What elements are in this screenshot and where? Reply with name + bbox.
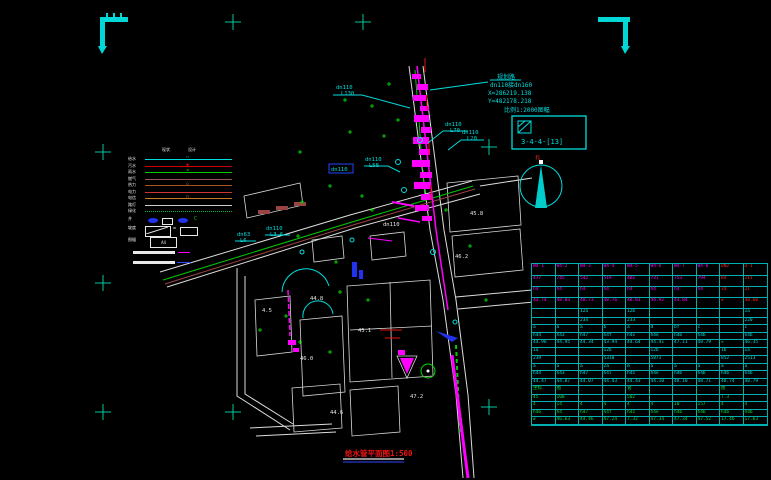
table-cell: a <box>673 363 697 371</box>
table-row: 41444441015744 <box>532 401 767 409</box>
table-row: aaa2amaaaaa <box>532 363 767 371</box>
table-cell: h4b <box>697 409 721 417</box>
table-cell: 4 <box>532 401 556 409</box>
legend-row-label: 雨水 <box>128 169 136 175</box>
table-cell: h4 <box>532 286 556 297</box>
pipe-hatch-block <box>417 84 428 90</box>
table-cell: h4b <box>720 370 744 378</box>
table-cell: c <box>697 324 721 332</box>
legend-header-existing: 现状 <box>162 147 170 153</box>
pipe-hatch-block <box>421 127 431 133</box>
maroon-hatch-block <box>294 202 306 206</box>
table-cell: bf <box>673 324 697 332</box>
table-cell: 44.41 <box>650 339 674 347</box>
table-cell: h4x <box>626 332 650 340</box>
table-cell: h4e <box>650 370 674 378</box>
table-cell: 519 <box>603 275 627 286</box>
table-cell: a <box>556 324 580 332</box>
table-cell: 图 <box>556 386 580 394</box>
magenta-pipe-lines <box>288 66 468 478</box>
table-group: 坐标图管图451005027.341444441015744h4bh4h47h4… <box>532 386 767 425</box>
legend-row-label: 绿化 <box>128 208 136 214</box>
table-cell: 477 <box>532 275 556 286</box>
table-cell <box>697 348 721 356</box>
table-cell: 44.84 <box>673 297 697 308</box>
table-cell <box>556 355 580 363</box>
map-label: 4.5 <box>262 308 272 314</box>
table-cell <box>556 317 580 325</box>
legend-slope-row: 坡度 = <box>128 225 234 237</box>
table-cell <box>720 324 744 332</box>
map-label: L6 <box>240 238 247 244</box>
table-cell: 2513 <box>744 355 768 363</box>
table-row: 43.7448.8348.7348.7648.8144.9244.84≠48.6… <box>532 297 767 308</box>
table-group: 12a12b1a234233220aaabadbfcch44h43h47h4fh… <box>532 309 767 348</box>
table-cell: a <box>626 324 650 332</box>
table-cell: a <box>556 363 580 371</box>
table-cell: h4 <box>556 409 580 417</box>
table-cell: h4z <box>626 370 650 378</box>
vegetation-mark <box>296 234 300 238</box>
table-cell: 233 <box>626 317 650 325</box>
vegetation-mark <box>370 104 374 108</box>
legend-line-sample <box>145 211 232 212</box>
table-cell: 5871 <box>650 355 674 363</box>
table-cell: 731 <box>650 275 674 286</box>
table-cell: 84 <box>720 275 744 286</box>
grid-cross <box>355 14 371 30</box>
table-cell <box>720 332 744 340</box>
table-cell: W4-6 <box>650 264 674 275</box>
table-cell: ≠ <box>720 297 744 308</box>
legend-row-label: 路灯 <box>128 202 136 208</box>
table-cell: 48.76 <box>603 297 627 308</box>
table-cell: 44.34 <box>579 339 603 347</box>
legend-symbols-label: 井 <box>128 216 132 222</box>
table-cell: 745 <box>556 275 580 286</box>
legend-line-symbol: ◇ <box>186 181 189 187</box>
map-label: L70 <box>450 128 460 134</box>
drawing-title: 给水管平面图1:500 <box>345 448 413 458</box>
table-cell: 794 <box>697 275 721 286</box>
vegetation-mark <box>366 298 370 302</box>
table-row: 451005027.3 <box>532 394 767 402</box>
table-cell: h47 <box>579 370 603 378</box>
table-cell <box>603 309 627 317</box>
table-cell: h4b <box>720 409 744 417</box>
table-cell: 4 <box>650 401 674 409</box>
table-cell: h4b <box>673 332 697 340</box>
table-cell <box>603 317 627 325</box>
table-cell: 4 <box>603 401 627 409</box>
table-cell: h4 <box>650 286 674 297</box>
map-label: 44.6 <box>330 410 343 416</box>
vegetation-mark <box>258 328 262 332</box>
table-cell: h4z <box>626 409 650 417</box>
table-cell <box>650 394 674 402</box>
legend: 现状 设计 给水◠污水◆雨水≏燃气热力◇电力电信○路灯绿化 井 C 坡度 = 图… <box>128 147 234 271</box>
table-cell: h4b <box>744 332 768 340</box>
grid-cross <box>481 399 497 415</box>
table-cell: 44.92 <box>650 297 674 308</box>
street-lines <box>160 66 534 478</box>
table-cell: h44 <box>532 370 556 378</box>
table-cell: 43.74 <box>532 297 556 308</box>
table-cell: 48.81 <box>626 297 650 308</box>
table-cell: c <box>744 324 768 332</box>
table-cell <box>697 309 721 317</box>
magenta-triangle-marker <box>400 358 414 374</box>
pipe-hatch-block <box>413 95 426 101</box>
pipe-hatch-block <box>288 340 296 345</box>
table-cell: 5310 <box>603 355 627 363</box>
table-cell <box>720 317 744 325</box>
vegetation-mark <box>334 260 338 264</box>
table-cell: 48.71 <box>697 378 721 386</box>
table-cell: 12b <box>603 348 627 356</box>
table-row: h4h4h4h4h4h4h4h43421 <box>532 286 767 297</box>
coord-x-label: X=286219.138 <box>488 90 532 97</box>
maroon-hatch-block <box>258 210 270 214</box>
table-cell: 2a <box>603 363 627 371</box>
legend-row-label: 热力 <box>128 182 136 188</box>
white-bar <box>133 261 175 265</box>
frame-size-box: A4 <box>150 237 177 248</box>
valve-icon: C <box>194 216 197 222</box>
table-cell: 44.96 <box>532 339 556 347</box>
legend-line-symbol: ≏ <box>186 168 189 174</box>
vegetation-mark <box>360 194 364 198</box>
north-arrow: 北 <box>520 154 562 208</box>
table-cell: 44.43 <box>626 378 650 386</box>
pipe-hatch-block <box>414 115 429 122</box>
legend-line-sample <box>145 192 232 193</box>
vegetation-mark <box>338 290 342 294</box>
table-cell: 234 <box>579 317 603 325</box>
table-cell: ≈ <box>720 339 744 347</box>
table-cell: 21 <box>744 286 768 297</box>
table-cell <box>626 348 650 356</box>
table-cell: 1b <box>720 348 744 356</box>
table-cell: 47.34 <box>673 416 697 424</box>
pipe-hatch-block <box>420 172 432 178</box>
table-cell <box>579 386 603 394</box>
table-cell <box>626 355 650 363</box>
map-label: 46.2 <box>455 254 468 260</box>
table-cell: 12a <box>579 309 603 317</box>
table-cell: a <box>744 363 768 371</box>
vegetation-mark <box>328 184 332 188</box>
table-cell: 4 <box>579 401 603 409</box>
table-cell: 44.10 <box>650 378 674 386</box>
vegetation-mark <box>298 340 302 344</box>
table-cell: W4-5 <box>626 264 650 275</box>
table-cell: W4-8 <box>697 264 721 275</box>
table-cell <box>673 348 697 356</box>
pipe-hatch-block <box>398 350 405 355</box>
map-label: 47.2 <box>410 394 423 400</box>
pipe-hatch-block <box>422 216 432 221</box>
table-cell: b <box>603 324 627 332</box>
table-cell: 1a <box>532 348 556 356</box>
legend-row-label: 燃气 <box>128 176 136 182</box>
legend-line-symbol: ◠ <box>186 155 189 161</box>
maroon-hatch-block <box>276 206 288 210</box>
road-name-label: 规划路 <box>497 73 515 81</box>
table-cell: 4 <box>720 401 744 409</box>
table-cell: 1a <box>744 309 768 317</box>
map-label: L58 <box>369 163 379 169</box>
table-cell <box>579 348 603 356</box>
north-label: 北 <box>535 154 540 161</box>
map-label: 44.8 <box>310 296 323 302</box>
table-row: 239531058718522513 <box>532 355 767 363</box>
legend-frame-label: 图幅 <box>128 237 136 243</box>
grid-cross <box>481 139 497 155</box>
table-cell: h4b <box>697 370 721 378</box>
table-cell: h4 <box>579 286 603 297</box>
cyan-details <box>235 80 521 324</box>
table-cell: 图 <box>720 386 744 394</box>
table-cell: 17.63 <box>744 416 768 424</box>
table-cell: 481 <box>626 275 650 286</box>
table-cell: 管 <box>626 386 650 394</box>
table-row: W4-1W4-2W4-3W4-4W4-5W4-6W4-7W4-8DN2D-1 <box>532 264 767 275</box>
table-cell: 12b <box>650 348 674 356</box>
table-cell: 46.63 <box>556 416 580 424</box>
vegetation-mark <box>468 244 472 248</box>
table-cell: h4f <box>603 332 627 340</box>
table-cell: W4-1 <box>532 264 556 275</box>
table-cell: 47.52 <box>697 416 721 424</box>
grid-cross <box>225 404 241 420</box>
table-cell: h4f <box>603 409 627 417</box>
table-cell: 46.35 <box>744 339 768 347</box>
table-cell <box>697 386 721 394</box>
table-row: 44.9644.9544.3443.9444.6444.4147.1148.79… <box>532 339 767 347</box>
table-cell: h4e <box>650 332 674 340</box>
table-cell: DN2 <box>720 264 744 275</box>
legend-bar-row <box>128 249 234 259</box>
table-cell: h43 <box>556 332 580 340</box>
table-cell: 47.34 <box>650 416 674 424</box>
legend-row-label: 电信 <box>128 195 136 201</box>
table-row: 234233220 <box>532 317 767 325</box>
table-cell: 211 <box>744 275 768 286</box>
table-row: 44.4744.8744.0744.4344.4344.1048.1048.71… <box>532 378 767 386</box>
map-label: dn110 <box>331 167 348 173</box>
map-label: L130 <box>341 91 354 97</box>
map-label: 45.8 <box>470 211 483 217</box>
table-cell <box>532 317 556 325</box>
vegetation-mark <box>284 314 288 318</box>
map-label: 46.0 <box>300 356 313 362</box>
table-cell <box>673 309 697 317</box>
vegetation-mark <box>444 208 448 212</box>
pipe-note-label: dn110接dn160 <box>490 81 533 89</box>
map-label: dn110 <box>383 222 400 228</box>
table-group: W4-1W4-2W4-3W4-4W4-5W4-6W4-7W4-8DN2D-147… <box>532 264 767 309</box>
vegetation-mark <box>396 118 400 122</box>
table-row: h44h43h47h4lh4zh4eh4bh4bh4bh4b <box>532 370 767 378</box>
table-cell: 753 <box>673 275 697 286</box>
table-row: h4bh4h47h4fh4zh4eh4bh4bh4bh4b <box>532 409 767 417</box>
pipe-hatch-block <box>421 194 432 200</box>
table-cell <box>697 394 721 402</box>
legend-symbols-row: 井 C <box>128 216 234 225</box>
table-cell: 14 <box>556 401 580 409</box>
table-cell: h4 <box>603 286 627 297</box>
table-cell <box>673 355 697 363</box>
table-row: 1a12b12b1b1a <box>532 348 767 356</box>
legend-header-design: 设计 <box>188 147 196 153</box>
legend-row-label: 电力 <box>128 189 136 195</box>
coord-y-label: Y=482178.218 <box>488 98 532 105</box>
table-row: aaabadbfcc <box>532 324 767 332</box>
table-cell: 44.64 <box>626 339 650 347</box>
scale-note: 比例1:2000图幅 <box>504 106 550 114</box>
legend-frame-row: 图幅 A4 <box>128 237 234 249</box>
table-row: 47774554251948173175379484211 <box>532 275 767 286</box>
table-cell <box>673 386 697 394</box>
table-cell <box>720 309 744 317</box>
vegetation-mark <box>343 98 347 102</box>
table-cell: a <box>697 363 721 371</box>
table-cell: h4b <box>532 409 556 417</box>
table-cell: h4 <box>673 286 697 297</box>
table-cell: 852 <box>720 355 744 363</box>
pipe-hatch-block <box>419 149 430 155</box>
table-cell: 44.07 <box>579 378 603 386</box>
pipe-hatch-block <box>412 160 430 167</box>
table-cell: 502 <box>626 394 650 402</box>
table-cell: 44.47 <box>532 378 556 386</box>
table-cell: 44.46 <box>579 416 603 424</box>
coordinate-block: 规划路 dn110接dn160 X=286219.138 Y=482178.21… <box>488 73 533 105</box>
pipe-hatch-block <box>412 74 421 79</box>
blue-line-sample <box>177 262 191 263</box>
map-labels-layer: dn110L130dn110L70dn110L20dn110L58dn110dn… <box>237 85 483 416</box>
table-cell: h43 <box>556 370 580 378</box>
legend-bars <box>128 249 234 271</box>
table-cell: 10 <box>673 401 697 409</box>
table-group: 1a12b12b1b1a239531058718522513aaa2amaaaa… <box>532 348 767 387</box>
pipe-hatch-block <box>414 182 430 189</box>
table-row: 坐标图管图 <box>532 386 767 394</box>
table-cell <box>603 386 627 394</box>
pipe-hatch-block <box>293 348 299 352</box>
table-row: 12a12b1a <box>532 309 767 317</box>
vegetation-mark <box>348 130 352 134</box>
maroon-hatch-blocks <box>258 202 306 214</box>
table-cell: W4-7 <box>673 264 697 275</box>
magenta-line-sample <box>178 252 190 253</box>
vegetation-mark <box>387 82 391 86</box>
table-cell: a <box>532 324 556 332</box>
table-cell: d <box>650 324 674 332</box>
map-label: 45.1 <box>358 328 371 334</box>
legend-line-sample <box>145 179 232 180</box>
grid-cross <box>95 275 111 291</box>
table-cell: a <box>720 363 744 371</box>
vegetation-mark <box>484 298 488 302</box>
table-cell: 17.46 <box>720 416 744 424</box>
table-cell: 45 <box>532 394 556 402</box>
table-cell: 220 <box>744 317 768 325</box>
table-cell: 47.11 <box>673 339 697 347</box>
table-cell: 12b <box>626 309 650 317</box>
table-row: h44h43h47h4fh4xh4eh4bh4bh4b <box>532 332 767 340</box>
table-cell <box>697 297 721 308</box>
table-cell: h4b <box>744 370 768 378</box>
table-cell: a <box>579 324 603 332</box>
equals-sign: = <box>173 226 176 232</box>
legend-slope-label: 坡度 <box>128 225 136 231</box>
legend-row: 绿化 <box>128 208 234 215</box>
table-cell <box>556 348 580 356</box>
table-cell: W4-2 <box>556 264 580 275</box>
table-cell: 48.73 <box>579 297 603 308</box>
legend-headers: 现状 设计 <box>128 147 234 156</box>
legend-row-label: 给水 <box>128 156 136 162</box>
table-cell: h4 <box>556 286 580 297</box>
pipe-hatch-block <box>415 205 429 211</box>
table-cell <box>697 317 721 325</box>
table-cell: 43.94 <box>603 339 627 347</box>
table-cell <box>673 317 697 325</box>
sheet-number: 3-4-4-[13] <box>521 138 563 146</box>
pipe-node-data-table: W4-1W4-2W4-3W4-4W4-5W4-6W4-7W4-8DN2D-147… <box>531 263 768 426</box>
table-cell: 44.87 <box>556 378 580 386</box>
table-cell: a <box>532 363 556 371</box>
empty-box-icon <box>180 227 198 236</box>
table-cell: D-1 <box>744 264 768 275</box>
table-cell <box>650 386 674 394</box>
table-cell: m <box>626 363 650 371</box>
table-cell: h4 <box>697 286 721 297</box>
legend-line-sample <box>145 205 232 206</box>
well-ellipse-icon <box>148 218 158 223</box>
frame-corner-left <box>98 13 128 54</box>
map-label: L3.6 <box>270 232 283 238</box>
table-cell <box>579 394 603 402</box>
table-cell: h44 <box>532 332 556 340</box>
table-cell <box>603 394 627 402</box>
table-cell: W4-4 <box>603 264 627 275</box>
grid-cross <box>95 404 111 420</box>
table-cell: 34 <box>720 286 744 297</box>
slope-box-icon <box>145 226 171 237</box>
table-cell: 100 <box>556 394 580 402</box>
table-cell: 坐标 <box>532 386 556 394</box>
table-cell <box>744 394 768 402</box>
table-cell: h47 <box>579 332 603 340</box>
legend-line-symbol: ○ <box>186 194 189 200</box>
table-cell: 157 <box>697 401 721 409</box>
legend-bar-row <box>128 259 234 269</box>
table-cell: 48.83 <box>556 297 580 308</box>
table-row: ≠46.6344.4647.247.3247.3447.3447.5217.46… <box>532 416 767 424</box>
table-cell: h4b <box>697 332 721 340</box>
table-cell: 48.10 <box>673 378 697 386</box>
grid-cross <box>95 144 111 160</box>
table-cell: 542 <box>579 275 603 286</box>
table-cell <box>744 386 768 394</box>
table-cell: 48.74 <box>720 378 744 386</box>
table-cell: 44.43 <box>603 378 627 386</box>
table-cell: h4 <box>626 286 650 297</box>
table-cell: 4 <box>744 401 768 409</box>
